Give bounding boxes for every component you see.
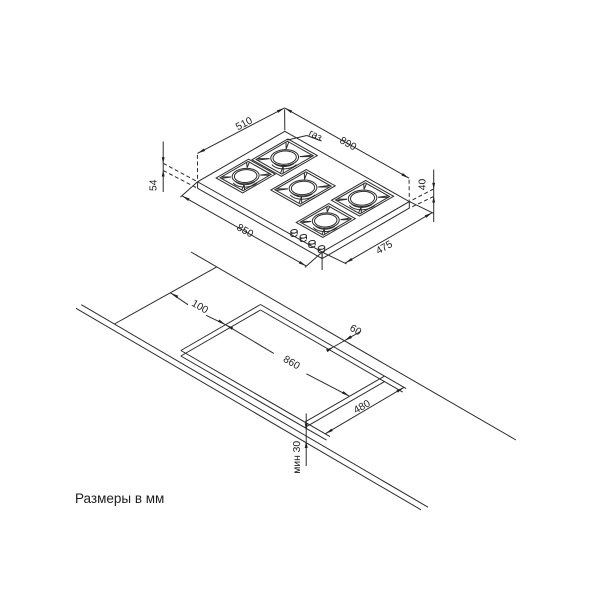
svg-text:54: 54	[149, 179, 160, 191]
svg-text:850: 850	[235, 222, 256, 240]
svg-text:100: 100	[189, 298, 210, 316]
svg-text:мин 30: мин 30	[292, 441, 303, 474]
svg-text:475: 475	[374, 239, 395, 257]
svg-text:480: 480	[352, 398, 373, 416]
svg-text:Размеры в мм: Размеры в мм	[75, 491, 164, 506]
svg-text:газ: газ	[307, 128, 324, 144]
svg-text:510: 510	[234, 115, 255, 133]
svg-text:860: 860	[281, 354, 302, 372]
svg-text:40: 40	[418, 179, 429, 191]
svg-text:890: 890	[338, 135, 359, 153]
